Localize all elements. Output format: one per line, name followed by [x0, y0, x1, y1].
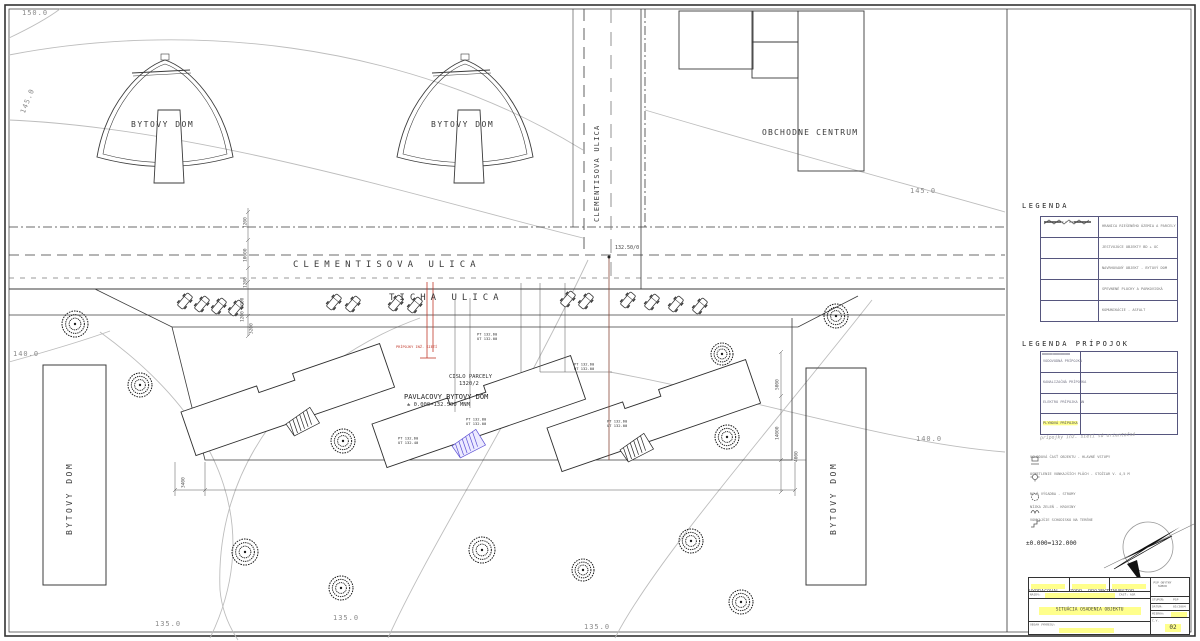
contour-label-135-a: 135.0 [155, 621, 181, 628]
tree-symbol [128, 373, 152, 397]
legend-row: JESTVUJÚCE OBJEKTY BD + OC [1041, 237, 1177, 258]
dome-right-label: BYTOVY DOM [431, 121, 494, 129]
tb-drawing-number-cell: Č.V. 02 [1150, 617, 1189, 635]
tree-symbol [711, 343, 733, 365]
tb-investor-cell: INVESTOR MESTO [1109, 578, 1151, 591]
parked-car [691, 297, 708, 315]
legend-title: LEGENDA [1022, 203, 1069, 210]
symbol-note: VCHODOVÁ ČASŤ OBJEKTU - HLAVNÉ VSTUPY [1030, 455, 1190, 461]
contour-label-135-b: 135.0 [333, 615, 359, 622]
parked-car [577, 292, 594, 310]
tree-symbol [232, 539, 258, 565]
dim-v3: 1200 [244, 277, 249, 288]
tb-author-cell: VYPRACOVAL ING. ARCH. [1029, 578, 1069, 591]
contour-label-140-right: 140.0 [916, 436, 942, 443]
legend2-empty-cell [1081, 352, 1177, 372]
parked-car [619, 291, 636, 309]
parked-car [193, 295, 210, 313]
contour-label-150: 150.0 [22, 10, 48, 17]
parked-car [559, 290, 576, 308]
dim-r2: 14000 [776, 426, 781, 440]
parked-car [325, 293, 342, 311]
dim-b1: 3400 [182, 477, 187, 488]
dim-v1: 1200 [244, 217, 249, 228]
street-label-ticha: TICHA ULICA [389, 294, 504, 303]
dimension-lines [173, 208, 806, 496]
contour-label-135-c: 135.0 [584, 624, 610, 631]
spot-elevation-3: PT 132.60UT 132.00 [607, 420, 627, 429]
dim-v4: 1200 5000 [241, 298, 246, 322]
dim-v2: 10000 [244, 248, 249, 262]
legend-sample-zigzag-line [1041, 259, 1099, 279]
tb-drawing-title-cell: SITUÁCIA OSADENIA OBJEKTU [1029, 598, 1150, 622]
main-building-level: ± 0.000=132.500 MNM [407, 403, 470, 409]
tb-engineer-cell: ZODP. PROJEKTANT ING. ARCH. [1069, 578, 1110, 591]
sheet-border [5, 5, 1195, 636]
tree-symbol [329, 576, 353, 600]
title-block: VYPRACOVAL ING. ARCH. ZODP. PROJEKTANT I… [1028, 577, 1190, 635]
tree-symbol [715, 425, 739, 449]
legend-row: KOMUNIKÁCIE - ASFALT [1041, 300, 1177, 321]
spot-elevation-1: PT 132.60UT 132.00 [477, 333, 497, 342]
legend-sample-existing-line [1041, 238, 1099, 258]
symbol-note: VONKAJŠIE SCHODISKO NA TERÉNE [1030, 518, 1190, 524]
parked-car [176, 292, 193, 310]
parked-car [344, 295, 361, 313]
parked-car [667, 295, 684, 313]
legend-sample-dashed-line [1041, 280, 1099, 300]
contour-label-145-right: 145.0 [910, 188, 936, 195]
spot-elevation-2: PT 132.60UT 132.00 [574, 363, 594, 372]
legend2-row: ELEKTRO PRÍPOJKA NN [1041, 393, 1177, 414]
shopping-centre-label: OBCHODNE CENTRUM [762, 129, 858, 137]
utility-note: PRÍPOJKY INŽ. SIETÍ [396, 346, 437, 350]
tree-symbol [729, 590, 753, 614]
legend2-empty-cell [1081, 414, 1177, 434]
spot-elevation-4: PT 132.60UT 132.40 [398, 437, 418, 446]
symbol-note: NÍZKA ZELEŇ - KROVINY [1030, 505, 1190, 511]
terrain-contours [9, 9, 1005, 640]
tb-org-cell: PSP OBYTNÝ SÚBOR [1150, 578, 1189, 596]
symbol-note: OSVETLENIE VONKAJŠÍCH PLÔCH - STOŽIAR V.… [1030, 472, 1190, 478]
dim-r3: 4000 [795, 451, 800, 462]
street-node-elevation: 132.50/0 [615, 246, 639, 251]
site-plan-linework [0, 0, 1200, 641]
legend-row: NAVRHOVANÝ OBJEKT - BYTOVÝ DOM [1041, 258, 1177, 279]
legend2-empty-cell [1081, 394, 1177, 414]
dim-r1: 5000 [776, 379, 781, 390]
drawing-sheet: 150.0 145.0 145.0 140.0 140.0 135.0 135.… [0, 0, 1200, 641]
legend-sample-thick-line [1041, 301, 1099, 321]
tree-symbol [824, 304, 848, 328]
north-arrow [1104, 522, 1194, 584]
parcel-number: 1320/2 [459, 382, 479, 388]
legend2-row: KANALIZAČNÁ PRÍPOJKA [1041, 372, 1177, 393]
street-label-clementisova-vertical: CLEMENTISOVA ULICA [594, 125, 601, 222]
tree-symbol [679, 529, 703, 553]
dome-building-right [397, 54, 533, 183]
block-left-label: BYTOVY DOM [66, 462, 74, 535]
legend-row: SPEVNENÉ PLOCHY A PARKOVISKÁ [1041, 279, 1177, 300]
parcel-label: CISLO PARCELY [449, 375, 492, 381]
tree-symbol [572, 559, 594, 581]
tb-content-cell: OBSAH VÝKRESU: SITUÁCIA [1029, 621, 1150, 635]
datum-note: ±0.000=132.000 [1026, 541, 1077, 547]
shopping-centre-outline [679, 11, 864, 171]
legend2-row: PLYNOVÁ PRÍPOJKA [1041, 413, 1177, 434]
legend2-title: LEGENDA PRÍPOJOK [1022, 341, 1129, 348]
legend2-empty-cell [1081, 373, 1177, 393]
dome-building-left [97, 54, 233, 183]
tree-symbol [469, 537, 495, 563]
tree-symbol [331, 429, 355, 453]
main-building-label: PAVLACOVY BYTOVY DOM [404, 394, 488, 401]
parked-car [210, 297, 227, 315]
parked-car [643, 293, 660, 311]
contour-label-140-left: 140.0 [13, 351, 39, 358]
block-right-label: BYTOVY DOM [830, 462, 838, 535]
spot-elevation-5: PT 132.80UT 132.00 [466, 418, 486, 427]
dim-v5: 3200 [250, 323, 255, 334]
dome-left-label: BYTOVY DOM [131, 121, 194, 129]
legend-table: HRANICA RIEŠENÉHO ÚZEMIA A PARCELY JESTV… [1040, 216, 1178, 322]
street-label-clementisova: CLEMENTISOVA ULICA [293, 261, 481, 270]
symbol-note: NOVÁ VÝSADBA - STROMY [1030, 492, 1190, 498]
legend-connections-table: VODOVODNÁ PRÍPOJKA KANALIZAČNÁ PRÍPOJKA … [1040, 351, 1178, 435]
